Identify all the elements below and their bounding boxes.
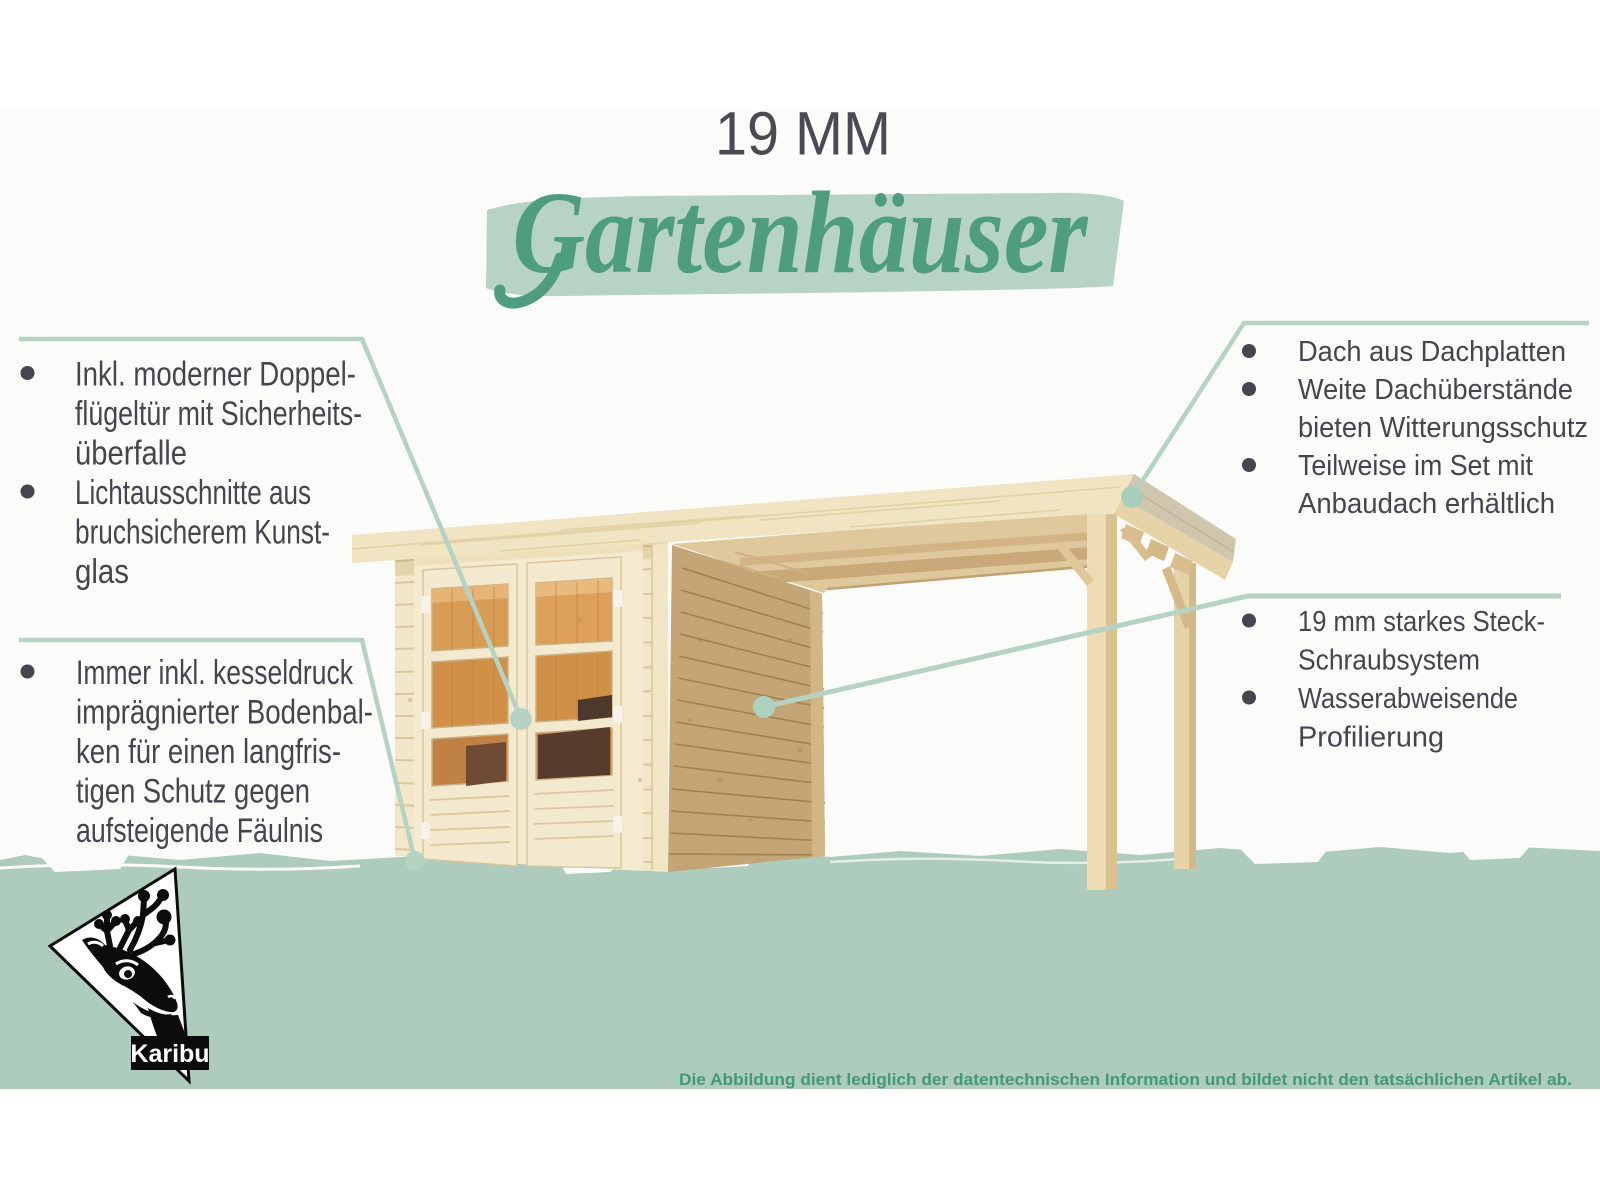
svg-text:bruchsicherem Kunst-: bruchsicherem Kunst- (75, 514, 330, 552)
svg-text:bieten Witterungsschutz: bieten Witterungsschutz (1298, 412, 1588, 444)
svg-text:19 MM: 19 MM (715, 100, 891, 168)
svg-text:Inkl. moderner Doppel-: Inkl. moderner Doppel- (75, 356, 356, 394)
svg-text:Schraubsystem: Schraubsystem (1298, 645, 1480, 677)
svg-text:Karibu: Karibu (130, 1040, 209, 1068)
svg-text:Immer inkl. kesseldruck: Immer inkl. kesseldruck (76, 654, 354, 692)
svg-text:Profilierung: Profilierung (1298, 722, 1444, 754)
svg-text:Dach aus Dachplatten: Dach aus Dachplatten (1298, 336, 1566, 368)
svg-text:Gartenhäuser: Gartenhäuser (513, 167, 1089, 298)
svg-text:flügeltür mit Sicherheits-: flügeltür mit Sicherheits- (75, 395, 362, 433)
svg-text:Anbaudach erhältlich: Anbaudach erhältlich (1298, 488, 1555, 520)
svg-text:Teilweise im Set mit: Teilweise im Set mit (1298, 450, 1533, 482)
svg-text:überfalle: überfalle (75, 435, 187, 473)
svg-text:19 mm starkes Steck-: 19 mm starkes Steck- (1298, 606, 1545, 638)
svg-text:Wasserabweisende: Wasserabweisende (1298, 683, 1518, 715)
svg-text:ken für einen langfris-: ken für einen langfris- (76, 733, 341, 771)
svg-text:aufsteigende Fäulnis: aufsteigende Fäulnis (76, 812, 323, 850)
svg-text:Weite Dachüberstände: Weite Dachüberstände (1298, 374, 1573, 406)
svg-text:imprägnierter Bodenbal-: imprägnierter Bodenbal- (76, 694, 373, 732)
svg-text:Lichtausschnitte aus: Lichtausschnitte aus (75, 474, 311, 512)
svg-text:tigen Schutz gegen: tigen Schutz gegen (76, 773, 310, 811)
svg-text:glas: glas (75, 553, 129, 591)
svg-text:Die Abbildung dient lediglich: Die Abbildung dient lediglich der datent… (679, 1070, 1572, 1089)
